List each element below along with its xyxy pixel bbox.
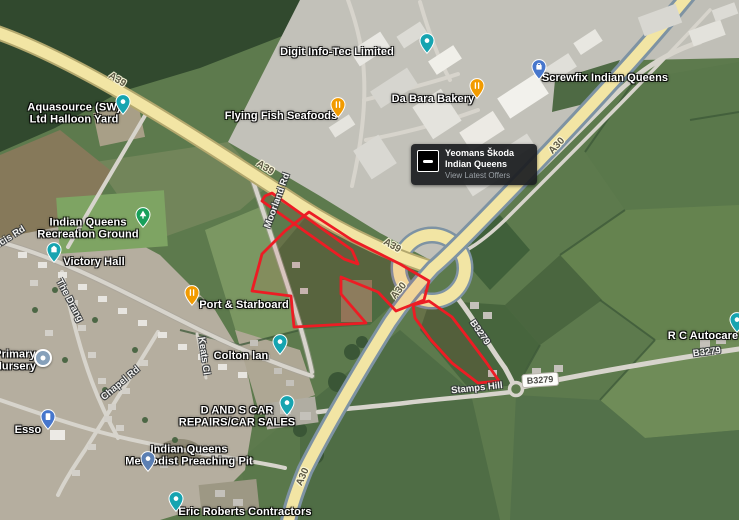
mini-roundabout [510, 383, 523, 396]
place-label-da-bara[interactable]: Da Bara Bakery [392, 93, 475, 105]
generic-poi-pin-digit-info-tec[interactable] [419, 33, 435, 55]
generic-poi-pin-colton-lan[interactable] [272, 334, 288, 356]
place-label-digit-info-tec[interactable]: Digit Info-Tec Limited [280, 46, 394, 58]
place-label-eric-roberts[interactable]: Eric Roberts Contractors [178, 506, 311, 518]
ad-card-yeomans-skoda[interactable]: Yeomans Škoda Indian Queens View Latest … [411, 144, 537, 185]
restaurant-pin-da-bara[interactable] [469, 78, 485, 100]
restaurant-pin-flying-fish[interactable] [330, 97, 346, 119]
shopping-pin-screwfix[interactable] [531, 59, 547, 81]
park-pin-recreation-ground[interactable] [135, 207, 151, 229]
ad-title-line: Indian Queens [445, 159, 514, 170]
pin-dot [41, 356, 46, 361]
place-label-flying-fish[interactable]: Flying Fish Seafoods [225, 110, 338, 122]
ad-cta[interactable]: View Latest Offers [445, 171, 514, 181]
school-pin-primary-nursery[interactable] [34, 349, 52, 367]
place-label-colton-lan[interactable]: Colton lan [214, 350, 269, 362]
generic-poi-pin-eric-roberts[interactable] [168, 491, 184, 513]
label-line: Indian Queens [23, 217, 153, 229]
generic-poi-pin-rc-autocare[interactable] [729, 312, 739, 334]
label-line: Indian Queens [109, 444, 269, 456]
restaurant-pin-port-starboard[interactable] [184, 285, 200, 307]
fuel-pin-esso[interactable] [40, 409, 56, 431]
place-label-methodist[interactable]: Indian Queens Methodist Preaching Pit [109, 444, 269, 469]
label-line: REPAIRS/CAR SALES [172, 417, 302, 429]
generic-poi-pin-d-and-s[interactable] [279, 395, 295, 417]
place-label-recreation-ground[interactable]: Indian Queens Recreation Ground [23, 217, 153, 242]
worship-pin-methodist[interactable] [140, 451, 156, 473]
place-label-rc-autocare[interactable]: R C Autocare [668, 330, 738, 342]
skoda-logo-icon [417, 150, 439, 172]
label-line: Methodist Preaching Pit [109, 456, 269, 468]
label-line: Ltd Halloon Yard [9, 114, 139, 126]
place-label-victory-hall[interactable]: Victory Hall [63, 256, 125, 268]
place-label-esso[interactable]: Esso [15, 424, 42, 436]
satellite-map-canvas[interactable]: A39 A39 A39 A30 A30 A30 B3279 B3279 B327… [0, 0, 739, 520]
generic-poi-pin-victory-hall[interactable] [46, 242, 62, 264]
generic-poi-pin-aquasource[interactable] [115, 94, 131, 116]
road-shield-b3279: B3279 [521, 372, 558, 389]
label-line: Recreation Ground [23, 229, 153, 241]
ad-title-line: Yeomans Škoda [445, 148, 514, 159]
place-label-screwfix[interactable]: Screwfix Indian Queens [542, 72, 668, 84]
place-label-port-starboard[interactable]: Port & Starboard [199, 299, 289, 311]
